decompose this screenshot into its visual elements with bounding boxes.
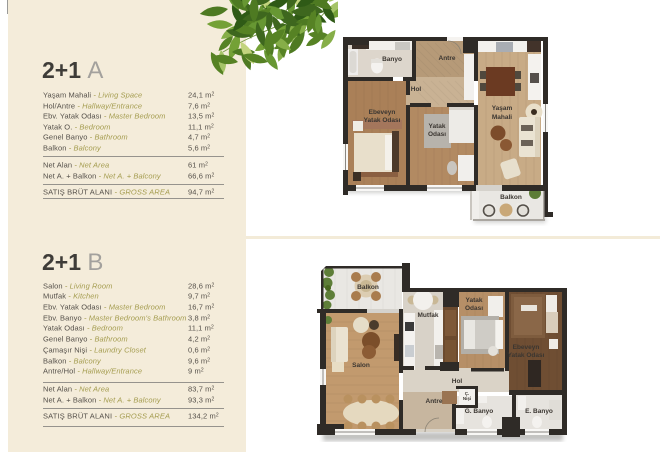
svg-text:Balkon: Balkon — [500, 194, 522, 201]
svg-text:Yatak: Yatak — [429, 123, 446, 130]
svg-text:Mutfak: Mutfak — [418, 312, 439, 319]
svg-text:Odası: Odası — [465, 305, 483, 312]
svg-text:Odası: Odası — [428, 131, 446, 138]
svg-text:Ebeveyn: Ebeveyn — [513, 344, 540, 351]
svg-text:Antre: Antre — [426, 398, 443, 405]
svg-text:Yatak Odası: Yatak Odası — [364, 117, 401, 124]
svg-text:Balkon: Balkon — [357, 284, 379, 291]
svg-text:Hol: Hol — [452, 378, 463, 385]
svg-text:Yatak Odası: Yatak Odası — [508, 352, 545, 359]
svg-text:Salon: Salon — [352, 362, 370, 369]
svg-text:Yaşam: Yaşam — [492, 105, 513, 112]
svg-text:Hol: Hol — [411, 86, 422, 93]
svg-text:Antre: Antre — [439, 55, 456, 62]
svg-text:Banyo: Banyo — [382, 56, 402, 63]
svg-text:Yatak: Yatak — [466, 297, 483, 304]
svg-text:Mahali: Mahali — [492, 114, 512, 121]
svg-text:E. Banyo: E. Banyo — [525, 408, 553, 415]
svg-text:Nişi: Nişi — [463, 396, 471, 401]
svg-text:Ebeveyn: Ebeveyn — [369, 109, 396, 116]
svg-text:G. Banyo: G. Banyo — [465, 408, 494, 415]
